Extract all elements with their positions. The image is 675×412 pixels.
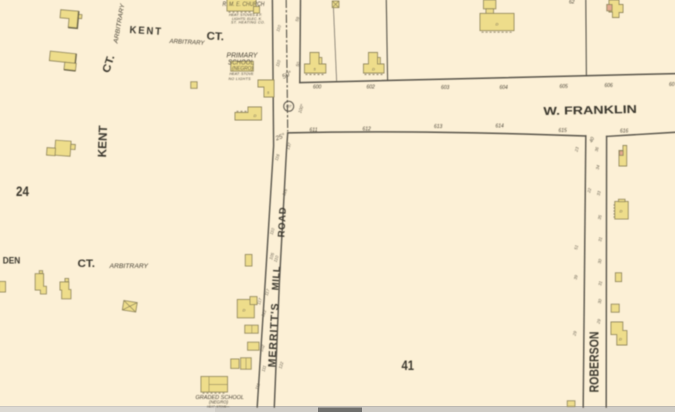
svg-text:CT.: CT. bbox=[78, 258, 96, 270]
svg-text:24: 24 bbox=[16, 184, 29, 199]
svg-text:606: 606 bbox=[605, 83, 614, 89]
svg-text:R. M. E. CHURCH: R. M. E. CHURCH bbox=[223, 1, 265, 8]
svg-text:D: D bbox=[243, 308, 246, 313]
svg-text:616: 616 bbox=[620, 129, 629, 135]
svg-text:62: 62 bbox=[569, 0, 575, 6]
svg-text:603: 603 bbox=[441, 85, 450, 91]
svg-text:D: D bbox=[496, 22, 499, 27]
svg-text:HEAT: STOVE: HEAT: STOVE bbox=[230, 72, 255, 76]
svg-text:60: 60 bbox=[669, 82, 675, 88]
svg-text:NO LIGHTS: NO LIGHTS bbox=[229, 77, 252, 81]
svg-text:KENT: KENT bbox=[129, 25, 163, 38]
svg-text:W. FRANKLIN: W. FRANKLIN bbox=[543, 104, 637, 118]
svg-text:PRIMARY: PRIMARY bbox=[227, 53, 259, 60]
svg-text:KENT: KENT bbox=[95, 124, 110, 157]
svg-text:612: 612 bbox=[363, 127, 372, 133]
svg-text:ROAD: ROAD bbox=[276, 207, 289, 238]
svg-text:407: 407 bbox=[286, 105, 292, 109]
svg-text:614: 614 bbox=[496, 124, 505, 130]
svg-text:DEN: DEN bbox=[3, 255, 21, 266]
svg-text:ARBITRARY: ARBITRARY bbox=[108, 263, 149, 270]
svg-text:615: 615 bbox=[559, 128, 568, 134]
svg-text:600: 600 bbox=[313, 85, 322, 91]
svg-text:D: D bbox=[372, 67, 375, 72]
svg-text:41: 41 bbox=[402, 358, 415, 373]
svg-text:605: 605 bbox=[560, 84, 569, 90]
svg-text:613: 613 bbox=[434, 124, 443, 130]
svg-text:611: 611 bbox=[310, 128, 318, 134]
svg-text:HEAT: STOVE—: HEAT: STOVE— bbox=[207, 405, 230, 409]
svg-text:CT.: CT. bbox=[206, 30, 224, 43]
svg-text:602: 602 bbox=[367, 85, 376, 91]
svg-text:MILL: MILL bbox=[270, 266, 283, 291]
svg-text:ST. HEATING CO.: ST. HEATING CO. bbox=[231, 20, 265, 24]
svg-text:D: D bbox=[254, 113, 257, 118]
svg-text:D: D bbox=[619, 337, 622, 342]
svg-text:ROBERSON: ROBERSON bbox=[587, 332, 601, 393]
svg-text:604: 604 bbox=[500, 85, 509, 91]
svg-text:D: D bbox=[620, 209, 623, 214]
